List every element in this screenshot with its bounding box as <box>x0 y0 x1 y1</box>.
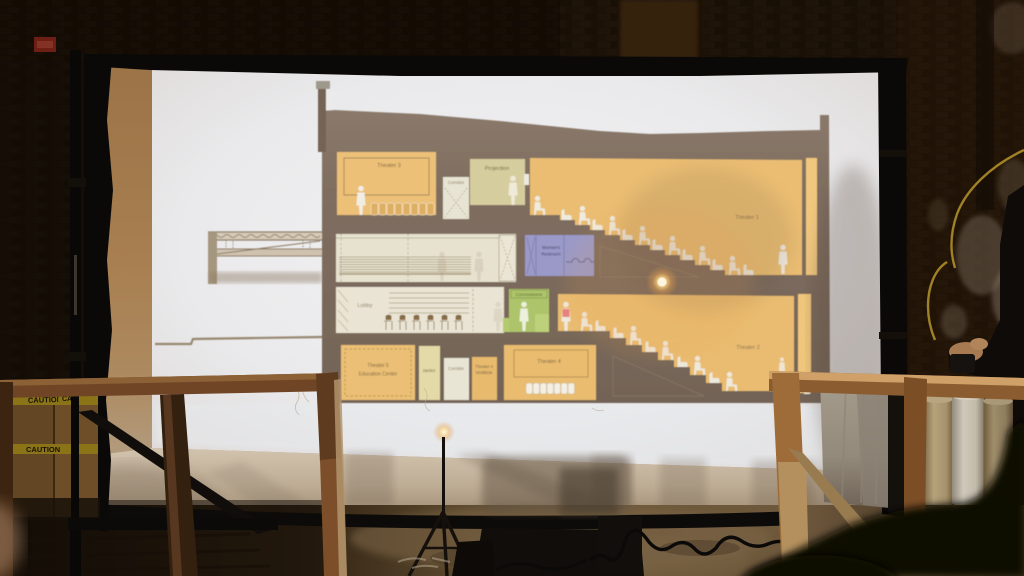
svg-text:Theater 2: Theater 2 <box>736 345 760 351</box>
svg-text:Theater 4: Theater 4 <box>537 359 561 365</box>
svg-text:Theater 5: Theater 5 <box>367 363 389 369</box>
svg-text:Restroom: Restroom <box>541 252 560 257</box>
svg-text:Theater 4: Theater 4 <box>475 364 494 369</box>
svg-text:Concessions: Concessions <box>516 292 543 297</box>
svg-text:Lobby: Lobby <box>358 303 373 309</box>
svg-text:Theater 3: Theater 3 <box>377 163 401 169</box>
svg-text:Women's: Women's <box>542 245 561 250</box>
svg-text:Janitor: Janitor <box>422 368 436 373</box>
svg-text:Corridor: Corridor <box>448 366 464 371</box>
svg-text:Education Center: Education Center <box>359 372 398 378</box>
svg-text:Corridor: Corridor <box>448 180 465 185</box>
svg-text:Projection: Projection <box>485 166 509 172</box>
svg-text:Vestibule: Vestibule <box>476 370 494 375</box>
